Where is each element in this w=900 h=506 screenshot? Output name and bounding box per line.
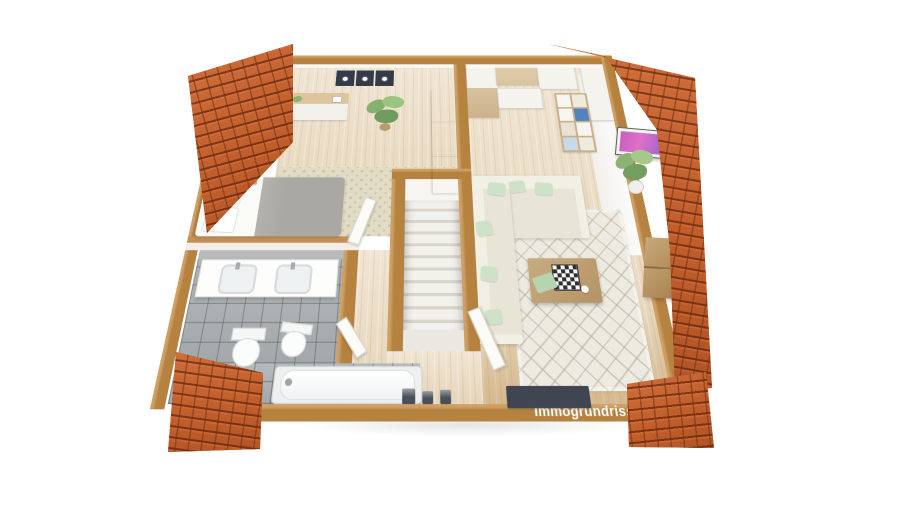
plant-leaf — [623, 164, 647, 180]
potted-plant-right — [615, 148, 655, 194]
toilet — [226, 328, 266, 369]
kitchen-island-counter — [497, 88, 544, 109]
bed-blanket — [254, 177, 345, 236]
vanity-counter — [194, 259, 339, 297]
bedroom-plant — [362, 95, 407, 136]
sofa-cushion — [487, 182, 506, 197]
wall-picture — [335, 70, 354, 85]
kitchen-cabinet-wood — [467, 88, 500, 118]
sofa-backrest-top — [469, 176, 582, 189]
wall-picture — [355, 70, 374, 85]
sofa-cushion — [480, 266, 498, 283]
shoe — [402, 389, 415, 405]
dresser-plant — [293, 96, 303, 102]
kitchen-cabinet-white — [466, 64, 499, 89]
shelf-cell — [571, 95, 587, 107]
shelf-cell — [563, 137, 579, 150]
bathtub-inner — [278, 370, 415, 401]
wall-top-face — [278, 64, 615, 67]
dresser — [285, 93, 349, 120]
wall-pictures — [335, 70, 394, 85]
plant-leaf — [373, 109, 398, 124]
faucet — [290, 262, 295, 269]
doormat — [506, 386, 592, 408]
toilet-bowl — [230, 338, 262, 367]
shelf-cell — [556, 95, 571, 107]
shoe — [440, 390, 451, 404]
shelf-cell — [560, 122, 576, 135]
vanity-splashback — [198, 250, 344, 259]
wall-top — [278, 56, 613, 65]
wall-bedroom-bath — [185, 236, 359, 250]
kitchen-cabinet-white — [536, 64, 578, 89]
plant-pot — [379, 123, 390, 131]
plant-pot — [628, 180, 644, 194]
sofa-cushion — [535, 182, 553, 196]
shelf-cell — [578, 137, 594, 150]
shelf-cell — [574, 108, 590, 121]
table-decor-ball — [581, 285, 590, 293]
wall-picture — [375, 70, 394, 85]
staircase-steps — [403, 201, 464, 333]
staircase-lower-landing — [403, 330, 465, 351]
photo-frame — [332, 96, 342, 103]
shelf-cell — [558, 108, 574, 121]
bidet-bowl — [278, 330, 308, 359]
shoe — [422, 391, 433, 404]
wardrobe — [432, 90, 459, 193]
wall-bottom: Immogrundriss — [220, 404, 693, 421]
floorplan-screenshot: Immogrundriss — [0, 0, 900, 506]
sofa-cushion — [475, 220, 494, 236]
sofa-cushion — [508, 180, 526, 193]
sofa-cushion — [484, 309, 503, 325]
shelf-cell — [576, 122, 592, 135]
